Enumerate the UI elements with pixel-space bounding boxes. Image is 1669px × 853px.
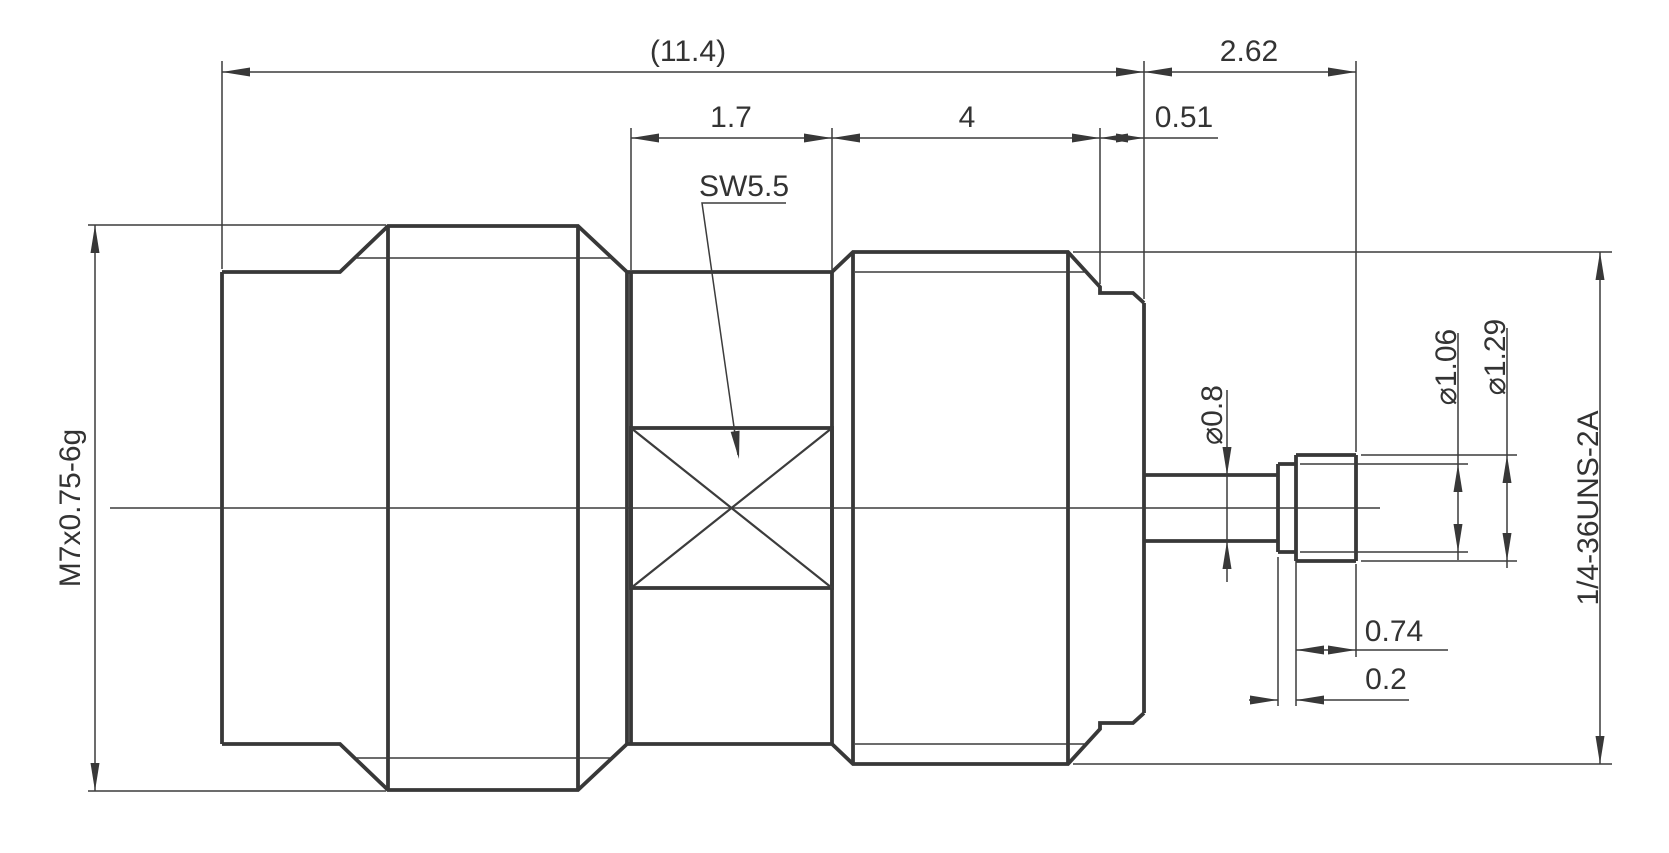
thread-section-length-label: 4: [959, 101, 976, 134]
overall-length-label: (11.4): [650, 35, 726, 68]
leader-line: [702, 203, 786, 455]
arrowhead: [631, 134, 659, 143]
wrench-size-label: SW5.5: [699, 170, 789, 203]
pin-diameter-label: ⌀0.8: [1196, 385, 1229, 445]
left-thread-label: M7x0.75-6g: [54, 429, 87, 587]
arrowhead: [1454, 524, 1463, 552]
extension-lines: [1361, 455, 1517, 561]
arrowhead: [1596, 252, 1605, 280]
dimension-wrench-size: SW5.5: [699, 170, 789, 460]
arrowhead: [731, 431, 744, 460]
pin-protrusion-label: 2.62: [1220, 35, 1278, 68]
arrowhead: [222, 68, 250, 77]
arrowhead: [1296, 696, 1324, 705]
flat-section-length-label: 1.7: [710, 101, 752, 134]
arrowhead: [1250, 696, 1278, 705]
arrowhead: [1454, 464, 1463, 492]
dimension-ring-diameter: ⌀1.06: [1300, 329, 1468, 560]
arrowhead: [91, 225, 100, 253]
arrowhead: [832, 134, 860, 143]
arrowhead: [1144, 68, 1172, 77]
arrowhead: [1596, 736, 1605, 764]
arrowhead: [1223, 541, 1232, 569]
arrowhead: [1296, 646, 1324, 655]
arrowhead: [1072, 134, 1100, 143]
connector-dimension-drawing: M7x0.75-6g (11.4) 2.62 1.7 4 0.51 SW5.5: [0, 0, 1669, 853]
washer-thickness-label: 0.51: [1155, 101, 1213, 134]
arrowhead: [804, 134, 832, 143]
arrowhead: [91, 763, 100, 791]
arrowhead: [1223, 447, 1232, 475]
arrowhead: [1116, 68, 1144, 77]
technical-drawing-page: M7x0.75-6g (11.4) 2.62 1.7 4 0.51 SW5.5: [0, 0, 1669, 853]
ring-diameter-label: ⌀1.06: [1430, 329, 1463, 405]
arrowhead: [1328, 68, 1356, 77]
arrowhead: [1116, 134, 1144, 143]
right-thread-label: 1/4-36UNS-2A: [1572, 410, 1605, 605]
dimension-pin-diameter: ⌀0.8: [1196, 385, 1232, 582]
arrowhead: [1503, 533, 1512, 561]
extension-lines: [631, 128, 1100, 284]
tip-length-label: 0.74: [1365, 615, 1423, 648]
extension-lines: [222, 61, 1356, 657]
outline-upper: [222, 226, 1144, 303]
arrowhead: [1328, 646, 1356, 655]
outline-lower: [222, 713, 1144, 790]
arrowhead: [1503, 455, 1512, 483]
tip-diameter-label: ⌀1.29: [1479, 319, 1512, 395]
ring-length-label: 0.2: [1365, 663, 1407, 696]
